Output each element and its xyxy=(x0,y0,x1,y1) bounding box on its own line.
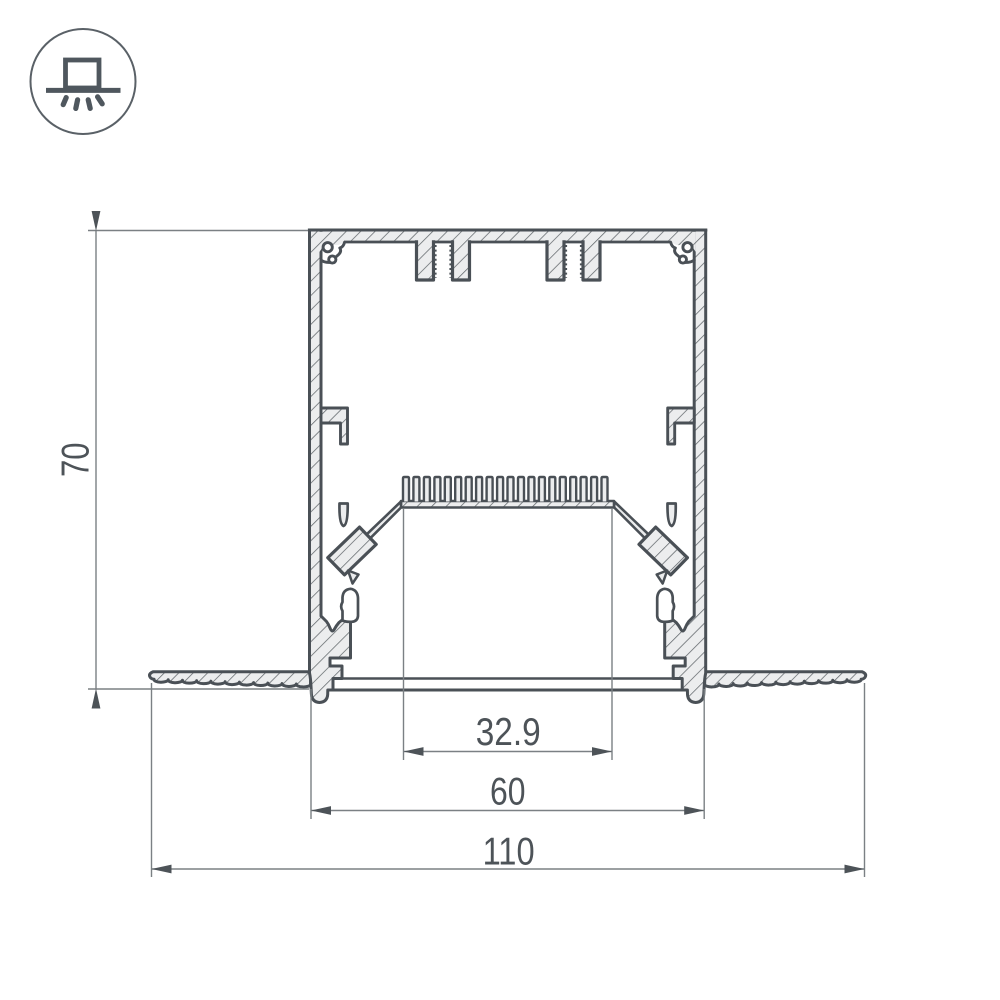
svg-text:110: 110 xyxy=(483,830,535,873)
svg-text:60: 60 xyxy=(490,770,526,813)
svg-text:32.9: 32.9 xyxy=(476,711,541,754)
svg-text:70: 70 xyxy=(55,442,98,477)
